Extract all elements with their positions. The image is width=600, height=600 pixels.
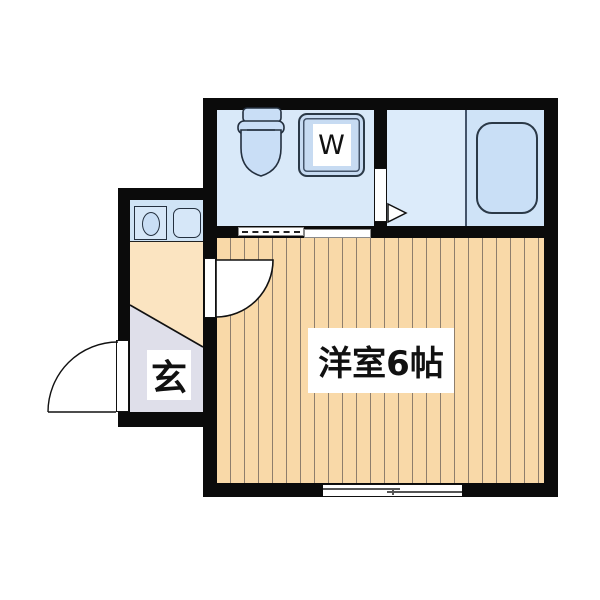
- wall-right: [544, 98, 558, 497]
- interior-door-leaf: [204, 258, 216, 318]
- entrance-door-leaf: [116, 340, 129, 412]
- window-pane-line: [323, 488, 400, 490]
- stove-burner-icon: [142, 212, 160, 236]
- floor-plan: W 洋室6帖 玄: [0, 0, 600, 600]
- washer-label: W: [313, 124, 351, 166]
- wall-top: [203, 98, 558, 110]
- sliding-door-panel-right: [304, 229, 371, 238]
- sink-icon: [173, 208, 201, 238]
- bathroom-door-leaf: [374, 168, 387, 222]
- sliding-door-panel-left: [238, 227, 304, 236]
- entrance-door-swing-arc: [48, 342, 118, 412]
- stove-icon: [134, 206, 167, 240]
- window-pane-line: [387, 491, 462, 493]
- entrance-label: 玄: [147, 350, 191, 400]
- bathroom-divider-line: [465, 110, 467, 226]
- bathtub-icon: [476, 122, 538, 214]
- window-center-tick: [392, 488, 394, 495]
- bathroom-shower-area: [387, 110, 467, 226]
- washing-machine-icon: W: [298, 113, 365, 177]
- wall-entrance-bottom: [118, 412, 217, 427]
- main-room-label: 洋室6帖: [308, 328, 454, 393]
- wall-kitchen-top: [118, 188, 203, 200]
- sliding-window: [323, 484, 462, 497]
